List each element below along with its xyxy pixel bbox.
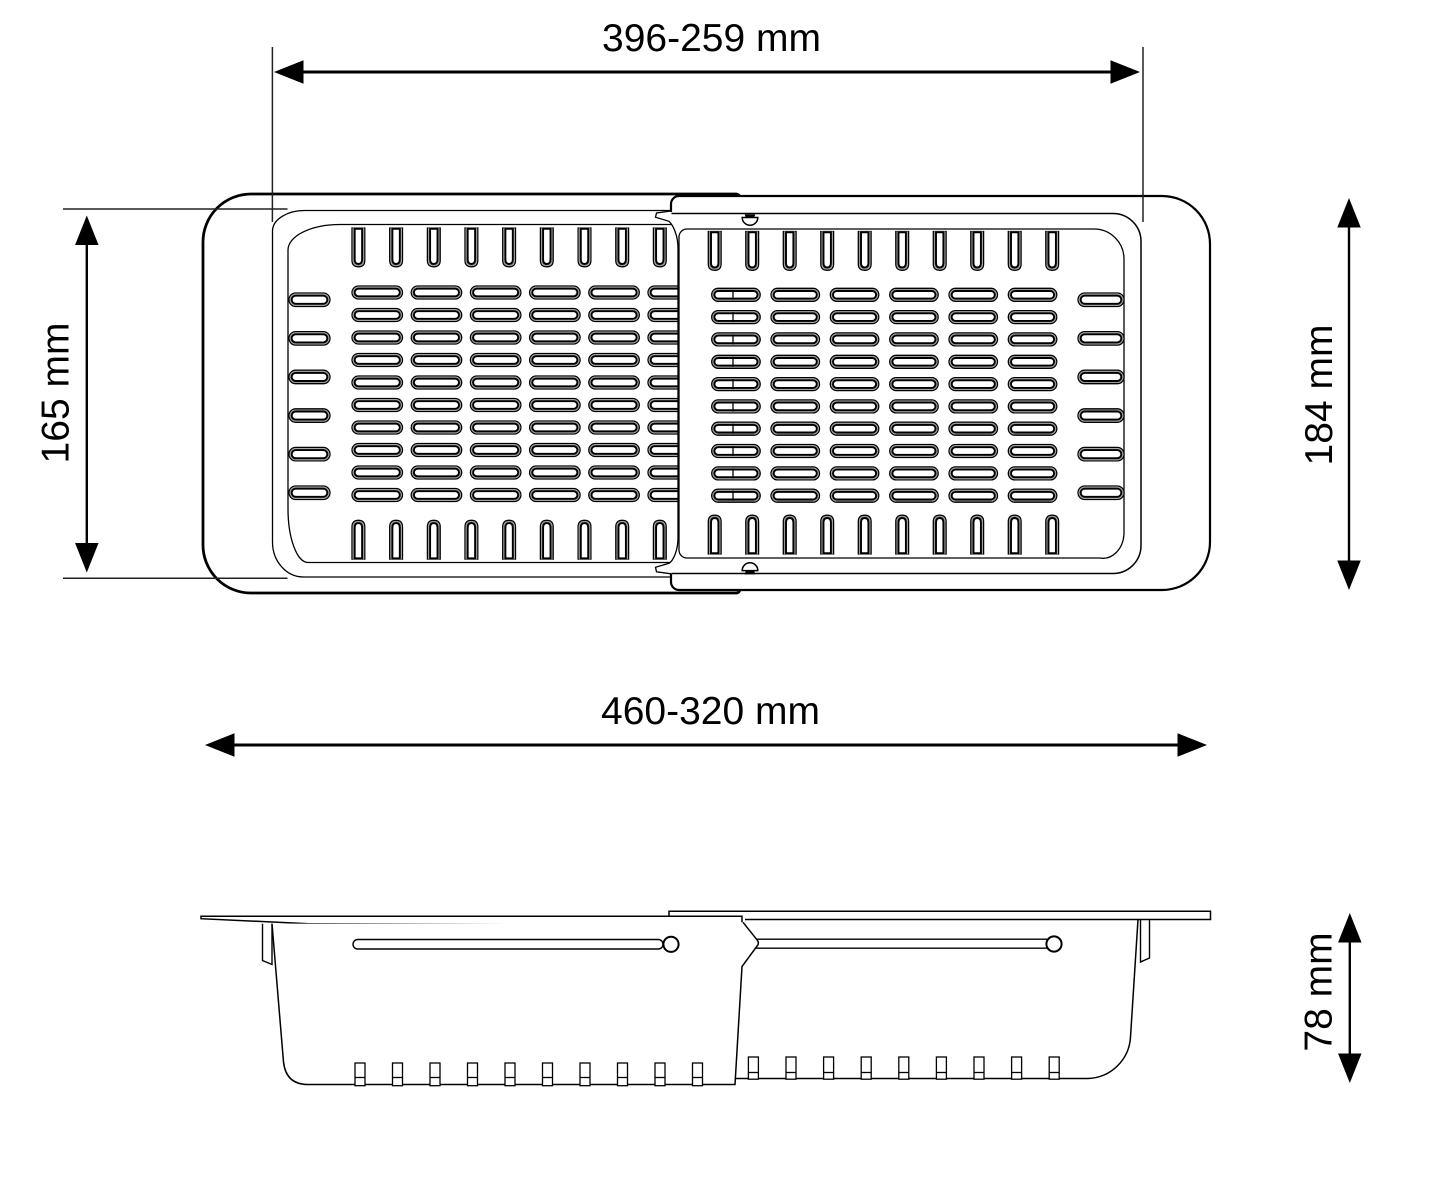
svg-text:165 mm: 165 mm [35, 323, 78, 464]
svg-text:460-320 mm: 460-320 mm [601, 690, 820, 733]
svg-text:78 mm: 78 mm [1298, 932, 1341, 1051]
svg-text:396-259 mm: 396-259 mm [602, 17, 821, 60]
svg-text:184 mm: 184 mm [1298, 325, 1341, 466]
